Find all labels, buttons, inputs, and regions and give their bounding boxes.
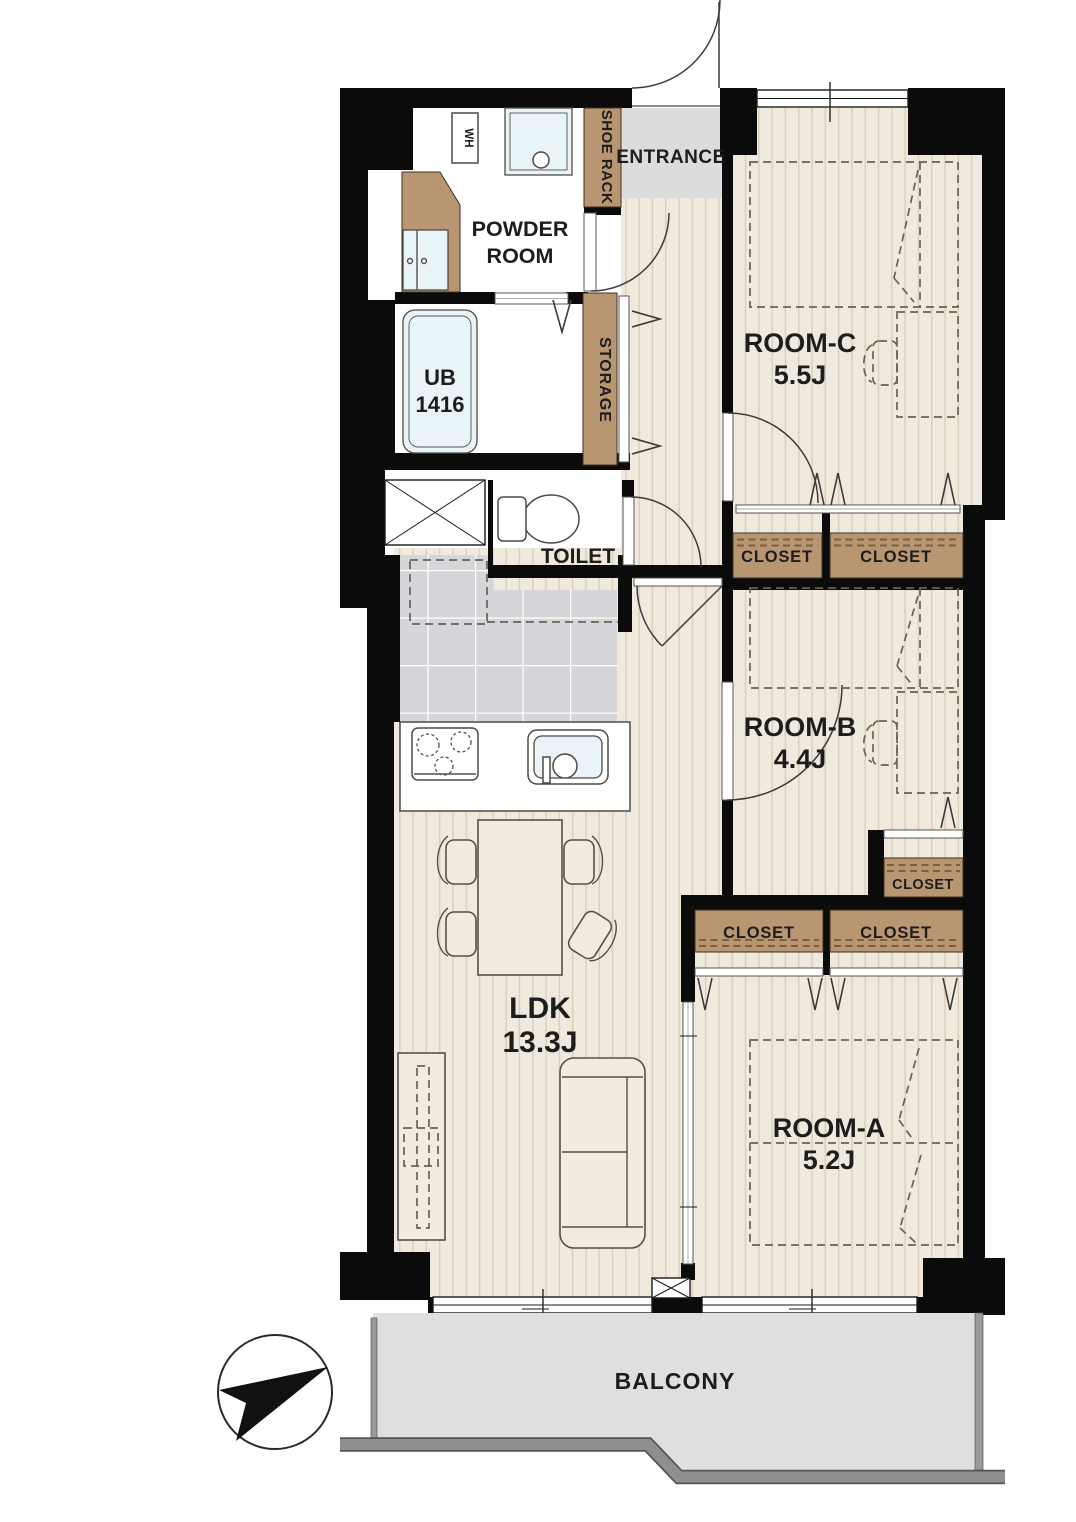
toilet-label: TOILET (541, 545, 615, 568)
sofa (560, 1058, 645, 1248)
closet-a1-label: CLOSET (723, 924, 795, 942)
closet-a2-track (830, 968, 963, 976)
tv-board (398, 1053, 445, 1240)
unit-bath-label-2: 1416 (416, 392, 465, 417)
unit-bath-label-1: UB (424, 365, 456, 390)
closet-a1-track (695, 968, 823, 976)
closet-b2-track (884, 830, 963, 838)
washer-pan (505, 108, 572, 175)
toilet-bowl (498, 495, 579, 543)
entrance-door (632, 0, 720, 107)
floor-plan-page: ENTRANCE POWDER ROOM WH SHOE RACK STORAG… (0, 0, 1076, 1522)
room-a-name: ROOM-A (773, 1113, 885, 1143)
closet-a2-label: CLOSET (860, 924, 932, 942)
compass (218, 1335, 332, 1449)
dining-table (478, 820, 562, 975)
storage-label: STORAGE (596, 337, 613, 423)
entrance-label: ENTRANCE (616, 147, 726, 168)
pipe-space-box (652, 1278, 690, 1298)
stove (412, 728, 478, 780)
ldk-size: 13.3J (502, 1026, 577, 1059)
room-b-name: ROOM-B (744, 712, 856, 742)
room-c-floor (733, 108, 982, 520)
sink (528, 730, 608, 784)
pipe-space-x-box (385, 480, 485, 545)
kitchen-tile-left (400, 555, 493, 722)
room-a-size: 5.2J (803, 1145, 856, 1175)
balcony (340, 1313, 1005, 1477)
balcony-left-rail (371, 1318, 377, 1438)
storage-door (619, 296, 629, 462)
floor-plan-drawing: ENTRANCE POWDER ROOM WH SHOE RACK STORAG… (0, 0, 1076, 1522)
closet-c-label: CLOSET (741, 548, 813, 566)
closet-b2-label: CLOSET (892, 877, 954, 893)
water-heater-label: WH (462, 128, 474, 147)
balcony-right-divider (975, 1313, 983, 1470)
ldk-name: LDK (509, 992, 571, 1025)
room-c-name: ROOM-C (744, 328, 856, 358)
balcony-label: BALCONY (615, 1368, 736, 1394)
shoe-rack-label: SHOE RACK (598, 110, 615, 205)
room-c-size: 5.5J (774, 360, 827, 390)
kitchen-tile-right (493, 590, 618, 722)
vanity-cabinet (403, 230, 448, 290)
powder-room-label-2: ROOM (487, 244, 554, 268)
closet-b-label: CLOSET (860, 548, 932, 566)
room-b-size: 4.4J (774, 744, 827, 774)
powder-room-label-1: POWDER (472, 217, 569, 241)
